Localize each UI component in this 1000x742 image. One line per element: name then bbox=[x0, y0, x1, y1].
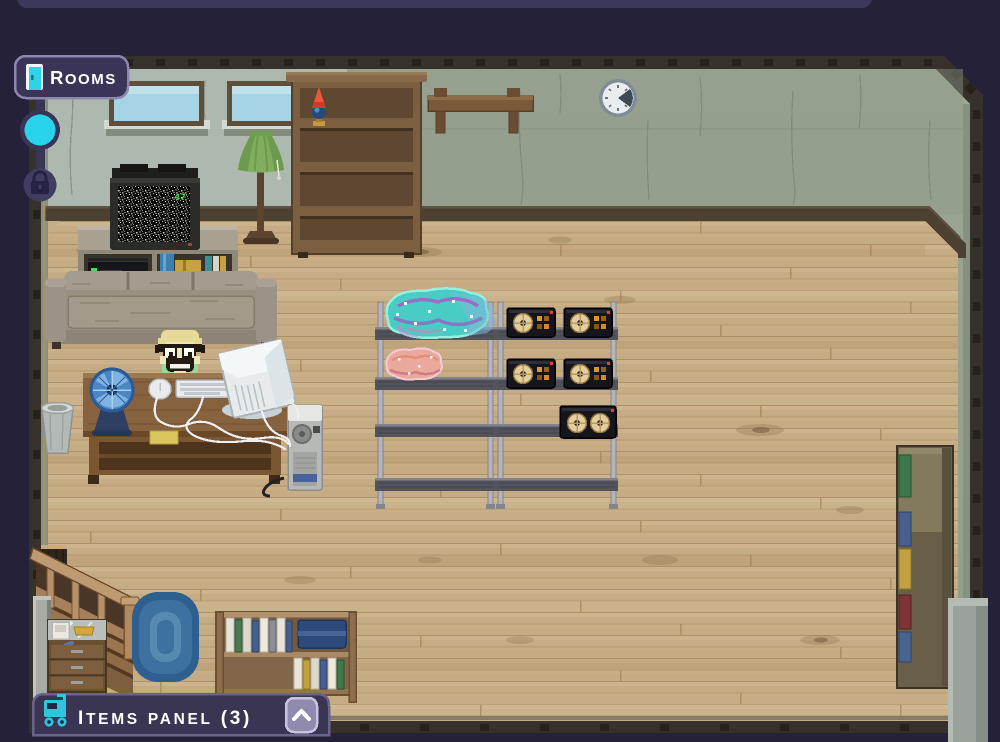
svg-text:47: 47 bbox=[174, 193, 186, 204]
svg-text:ROOMS: ROOMS bbox=[50, 67, 117, 88]
svg-text:ITEMS PANEL (3): ITEMS PANEL (3) bbox=[78, 708, 252, 729]
